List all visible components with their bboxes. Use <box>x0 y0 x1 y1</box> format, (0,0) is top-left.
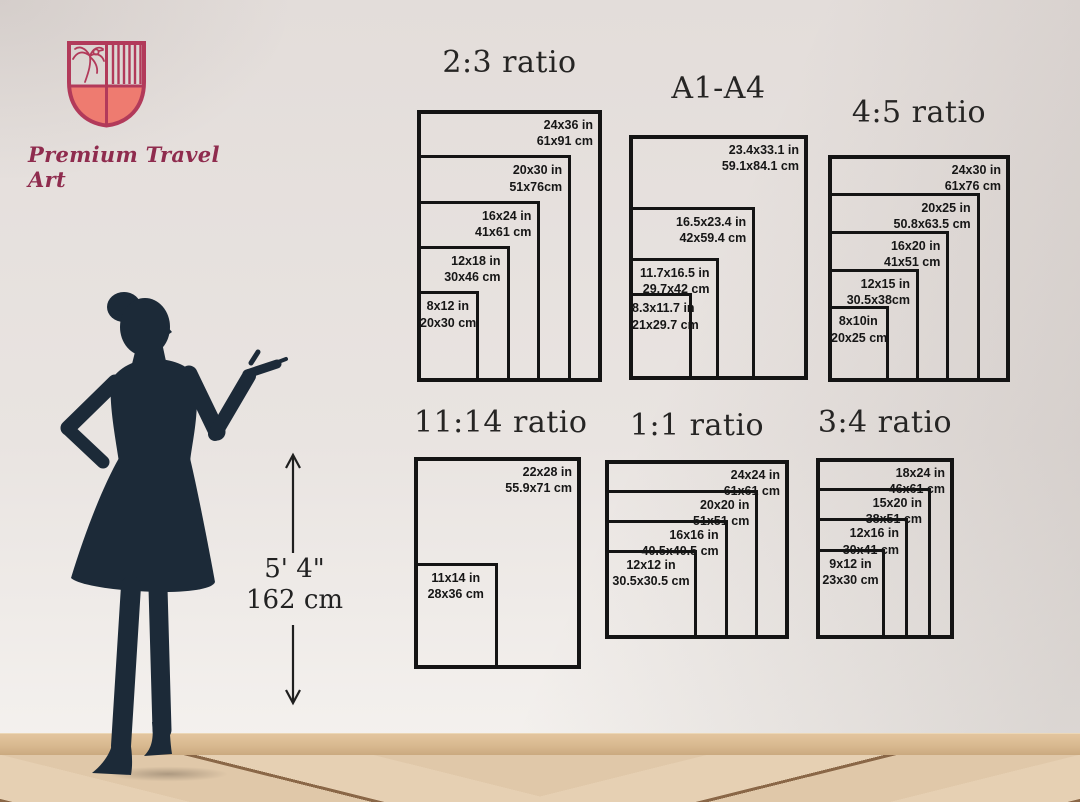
chart-title: 3:4 ratio <box>816 406 954 440</box>
size-label: 8x10in20x25 cm <box>831 313 886 346</box>
room-background: Premium Travel Art <box>0 0 1080 802</box>
chart-title: A1-A4 <box>629 72 808 106</box>
size-chart-a1-a4: A1-A4 23.4x33.1 in59.1x84.1 cm16.5x23.4 … <box>629 72 808 380</box>
chart-title: 2:3 ratio <box>417 46 602 80</box>
size-label: 11x14 in28x36 cm <box>417 570 495 603</box>
size-chart-1-1-ratio: 1:1 ratio 24x24 in61x61 cm20x20 in51x51 … <box>605 409 789 639</box>
size-chart-frame: 24x24 in61x61 cm20x20 in51x51 cm16x16 in… <box>605 460 789 639</box>
size-chart-frame: 22x28 in55.9x71 cm11x14 in28x36 cm <box>414 457 581 669</box>
size-label: 16.5x23.4 in42x59.4 cm <box>633 214 746 247</box>
woman-silhouette <box>45 286 290 782</box>
size-label: 23.4x33.1 in59.1x84.1 cm <box>633 142 799 175</box>
size-chart-frame: 24x36 in61x91 cm20x30 in51x76cm16x24 in4… <box>417 110 602 382</box>
brand-name: Premium Travel Art <box>28 142 258 192</box>
size-label: 16x20 in41x51 cm <box>832 238 940 271</box>
size-chart-4-5-ratio: 4:5 ratio 24x30 in61x76 cm20x25 in50.8x6… <box>828 96 1010 382</box>
size-label: 20x25 in50.8x63.5 cm <box>832 200 971 233</box>
size-chart-frame: 23.4x33.1 in59.1x84.1 cm16.5x23.4 in42x5… <box>629 135 808 380</box>
size-label: 20x30 in51x76cm <box>421 162 562 195</box>
size-label: 12x12 in30.5x30.5 cm <box>608 557 694 590</box>
size-chart-3-4-ratio: 3:4 ratio 18x24 in46x61 cm15x20 in38x51 … <box>816 406 954 639</box>
size-label: 22x28 in55.9x71 cm <box>418 464 572 497</box>
wood-floor-right-planks <box>540 755 1080 802</box>
chart-title: 11:14 ratio <box>414 406 581 440</box>
size-label: 8.3x11.7 in21x29.7 cm <box>632 300 689 333</box>
size-label: 8x12 in20x30 cm <box>420 298 476 331</box>
size-label: 9x12 in23x30 cm <box>819 556 882 589</box>
size-label: 16x24 in41x61 cm <box>421 208 531 241</box>
size-chart-frame: 24x30 in61x76 cm20x25 in50.8x63.5 cm16x2… <box>828 155 1010 382</box>
size-label: 12x18 in30x46 cm <box>421 253 501 286</box>
chart-title: 4:5 ratio <box>828 96 1010 130</box>
shield-crest-icon <box>65 40 148 128</box>
height-metric: 162 cm <box>232 585 357 616</box>
size-label: 12x15 in30.5x38cm <box>832 276 910 309</box>
size-chart-2-3-ratio: 2:3 ratio 24x36 in61x91 cm20x30 in51x76c… <box>417 46 602 382</box>
brand-logo: Premium Travel Art <box>28 40 258 192</box>
size-label: 24x30 in61x76 cm <box>832 162 1001 195</box>
height-measure-label: 5' 4" 162 cm <box>232 554 357 616</box>
size-chart-frame: 18x24 in46x61 cm15x20 in38x51 cm12x16 in… <box>816 458 954 639</box>
size-label: 24x36 in61x91 cm <box>421 117 593 150</box>
chart-title: 1:1 ratio <box>605 409 789 443</box>
height-imperial: 5' 4" <box>232 554 357 585</box>
palm-bird-motif <box>73 47 104 82</box>
size-chart-11-14-ratio: 11:14 ratio 22x28 in55.9x71 cm11x14 in28… <box>414 406 581 669</box>
